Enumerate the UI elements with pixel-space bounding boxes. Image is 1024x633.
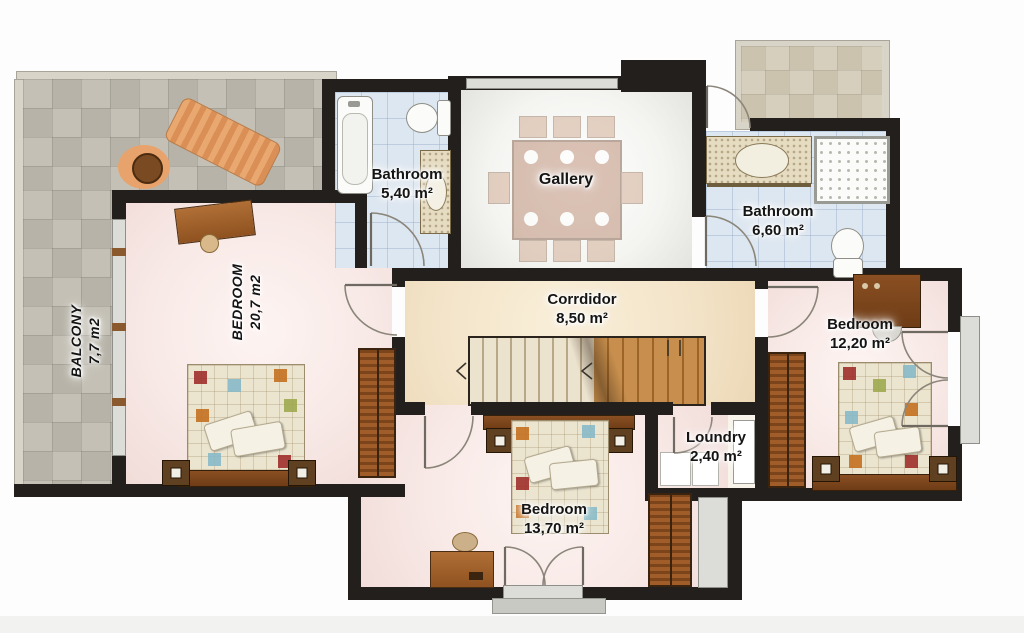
room-name: Bathroom	[743, 202, 814, 221]
wall	[692, 118, 706, 131]
room-area: 6,60 m²	[743, 221, 814, 240]
nightstand	[486, 428, 513, 453]
bedroom-bottom-window	[698, 497, 728, 588]
plate	[560, 150, 574, 164]
wall	[471, 402, 673, 415]
label-gallery: Gallery	[539, 170, 593, 190]
window-post	[112, 323, 126, 331]
stairs	[468, 336, 706, 406]
label-bedroom-left: BEDROOM 20,7 m2	[229, 264, 265, 341]
entry-step	[492, 598, 606, 614]
room-area: 20,7 m2	[247, 264, 265, 341]
wall	[112, 456, 126, 484]
nightstand	[812, 456, 840, 482]
label-balcony: BALCONY 7,7 m2	[68, 305, 104, 378]
vase	[452, 532, 478, 552]
wall	[392, 402, 425, 415]
wall	[755, 281, 768, 289]
plate	[524, 150, 538, 164]
label-bedroom-right: Bedroom 12,20 m²	[827, 315, 893, 353]
room-area: 2,40 m²	[686, 447, 746, 466]
wall	[755, 415, 768, 495]
room-area: 13,70 m²	[521, 519, 587, 538]
room-name: Gallery	[539, 170, 593, 190]
window-post	[112, 398, 126, 406]
room-name: Bedroom	[521, 500, 587, 519]
wall	[348, 587, 505, 600]
wardrobe	[768, 352, 806, 488]
wall	[348, 497, 361, 600]
stair-shadow	[530, 338, 650, 404]
plate	[560, 212, 574, 226]
page-bottom-band	[0, 616, 1024, 633]
room-name: Corrdidor	[547, 290, 616, 309]
wardrobe	[648, 493, 692, 587]
bedroom-right-window	[960, 316, 980, 444]
toilet-tank	[437, 100, 451, 136]
wall	[112, 197, 126, 219]
room-area: 12,20 m²	[827, 334, 893, 353]
wall	[322, 79, 335, 203]
sink-counter	[706, 136, 812, 184]
nightstand	[606, 428, 633, 453]
desk-chair	[200, 234, 219, 253]
dining-chair	[621, 172, 643, 204]
gallery-window	[466, 78, 618, 89]
wall	[711, 402, 768, 415]
room-name: BALCONY	[68, 305, 86, 378]
wall	[322, 79, 461, 92]
dining-chair	[553, 116, 581, 138]
room-name: Bathroom	[372, 165, 443, 184]
dining-chair	[488, 172, 510, 204]
floor-plan: BALCONY 7,7 m2 BEDROOM 20,7 m2 Bathroom …	[0, 0, 1024, 633]
wall	[692, 60, 706, 217]
dining-chair	[519, 240, 547, 262]
wardrobe	[358, 348, 396, 478]
bed	[838, 362, 932, 482]
nightstand	[929, 456, 957, 482]
nightstand	[288, 460, 316, 486]
label-bathroom-right: Bathroom 6,60 m²	[743, 202, 814, 240]
room-area: 7,7 m2	[86, 305, 104, 378]
toilet	[406, 103, 438, 133]
shower	[814, 136, 890, 204]
wall	[392, 281, 405, 287]
room-area: 8,50 m²	[547, 309, 616, 328]
bathtub	[337, 96, 373, 194]
room-name: BEDROOM	[229, 264, 247, 341]
room-area: 5,40 m²	[372, 184, 443, 203]
label-laundry: Loundry 2,40 m²	[686, 428, 746, 466]
plate	[595, 212, 609, 226]
dining-chair	[519, 116, 547, 138]
window-post	[112, 248, 126, 256]
dining-chair	[587, 116, 615, 138]
wall	[750, 118, 886, 131]
terrace-right-floor	[741, 46, 882, 122]
wall	[645, 415, 658, 495]
plate	[524, 212, 538, 226]
room-name: Loundry	[686, 428, 746, 447]
terrace-table	[132, 153, 163, 184]
nightstand	[162, 460, 190, 486]
dining-chair	[553, 240, 581, 262]
plate	[595, 150, 609, 164]
desk	[430, 551, 494, 588]
wall	[728, 490, 742, 600]
dining-chair	[587, 240, 615, 262]
label-bedroom-bottom: Bedroom 13,70 m²	[521, 500, 587, 538]
room-name: Bedroom	[827, 315, 893, 334]
label-corridor: Corrdidor 8,50 m²	[547, 290, 616, 328]
wall	[355, 190, 367, 268]
label-bathroom-small: Bathroom 5,40 m²	[372, 165, 443, 203]
